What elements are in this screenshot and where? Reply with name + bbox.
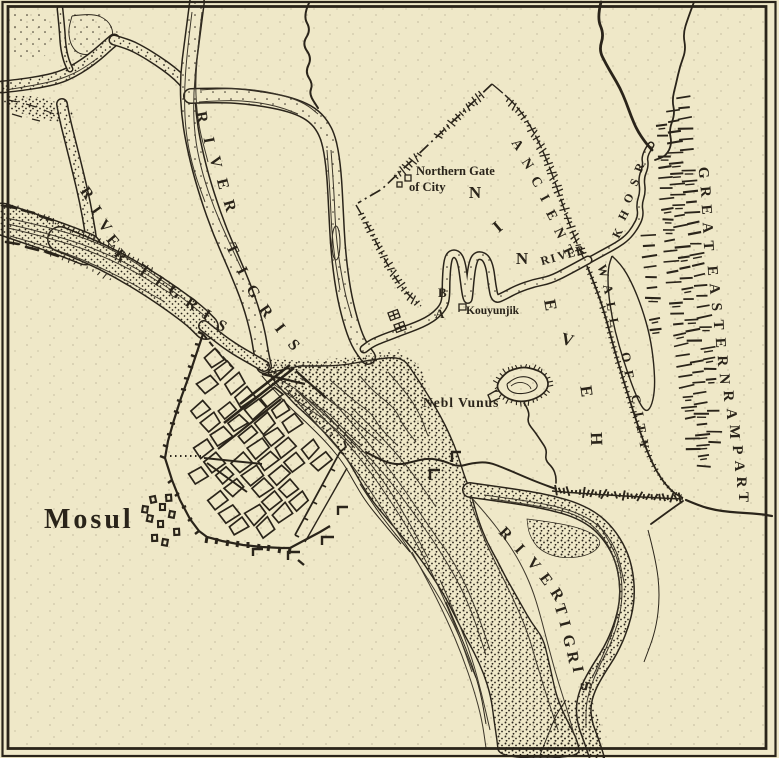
svg-text:R: R: [733, 477, 749, 488]
svg-text:R: R: [697, 186, 714, 198]
svg-text:M: M: [726, 425, 742, 439]
svg-text:G: G: [695, 166, 712, 179]
svg-text:Nebl Vunus: Nebl Vunus: [423, 395, 499, 410]
svg-text:T: T: [710, 319, 727, 330]
svg-text:N: N: [516, 249, 529, 268]
svg-text:E: E: [698, 204, 715, 215]
svg-text:Mosul: Mosul: [44, 504, 134, 535]
svg-text:S: S: [708, 302, 724, 311]
svg-text:E: E: [712, 337, 729, 348]
svg-text:R: R: [714, 355, 730, 367]
svg-text:B: B: [438, 285, 447, 300]
svg-text:T: T: [700, 240, 717, 251]
svg-text:N: N: [716, 373, 732, 385]
svg-text:H: H: [587, 432, 606, 446]
svg-text:T: T: [735, 492, 751, 502]
svg-text:A: A: [706, 283, 723, 295]
svg-text:Northern Gate: Northern Gate: [416, 164, 495, 178]
svg-text:N: N: [469, 183, 482, 202]
svg-text:A: A: [435, 306, 445, 321]
svg-text:of City: of City: [409, 180, 446, 194]
svg-text:A: A: [731, 461, 747, 472]
svg-text:Kouyunjik: Kouyunjik: [466, 305, 520, 317]
svg-text:A: A: [723, 408, 739, 420]
svg-text:R: R: [720, 390, 736, 402]
svg-text:P: P: [729, 445, 745, 454]
svg-text:E: E: [704, 265, 721, 276]
svg-text:A: A: [699, 222, 716, 234]
